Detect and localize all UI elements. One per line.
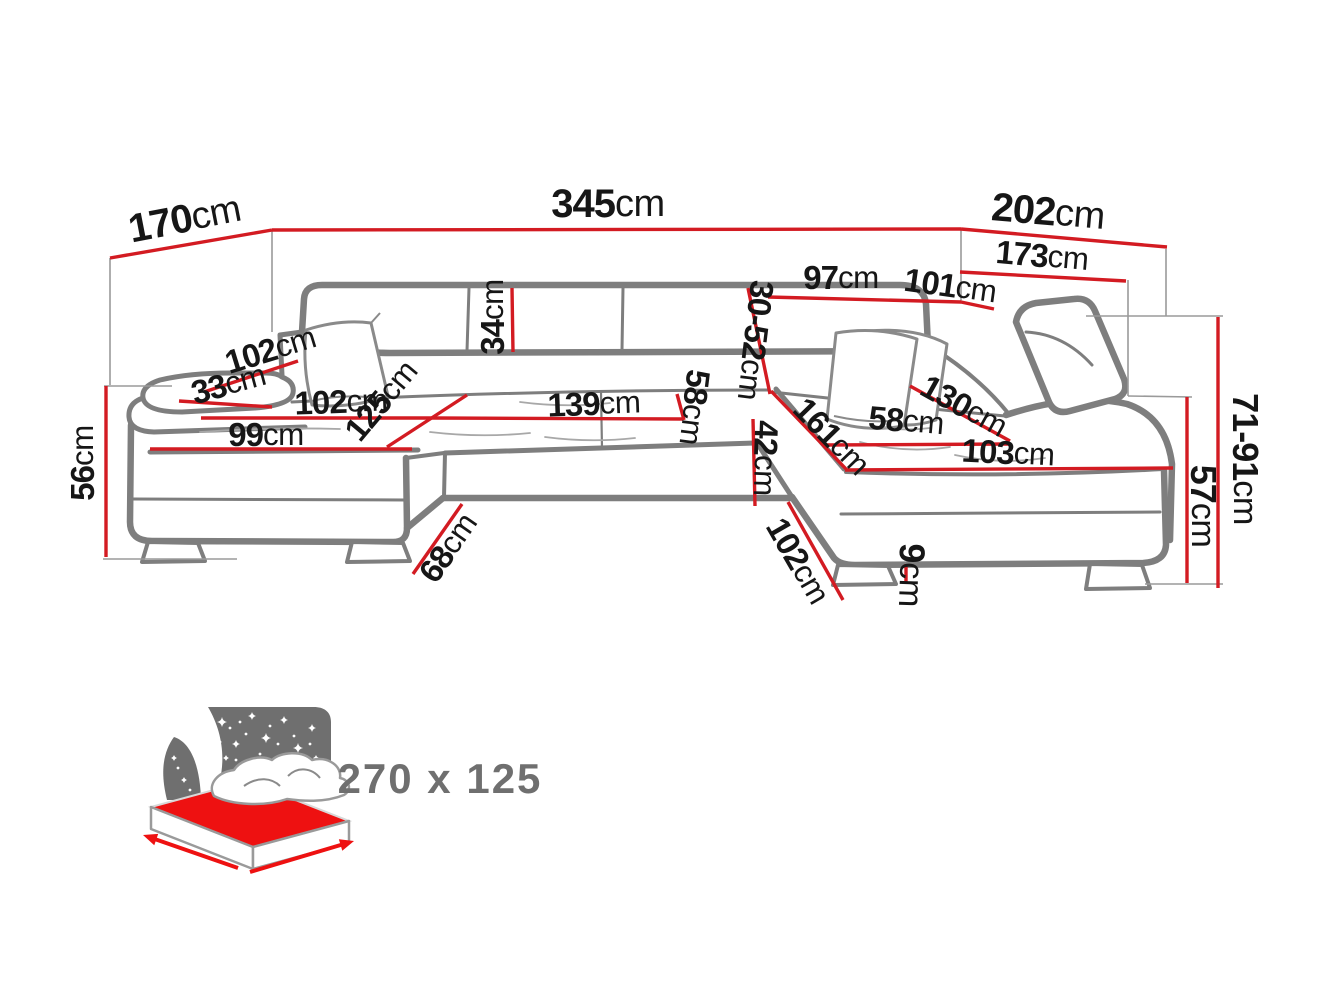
dim-label-overall-depth-left: 170cm — [125, 186, 245, 251]
size-arrow-head — [339, 839, 354, 851]
dim-label-foot-height: 9cm — [890, 543, 933, 608]
dim-label-chaise-front-right: 103cm — [961, 431, 1056, 473]
size-arrow-head — [143, 834, 158, 845]
star-dot-icon — [245, 733, 248, 736]
dim-label-overall-depth-right: 202cm — [990, 185, 1107, 239]
star-icon — [203, 745, 209, 751]
chaise-left-inner-corner — [407, 498, 443, 528]
sleeping-function-icon: 270 x 125 — [143, 707, 542, 872]
base-seam-right — [841, 512, 1160, 514]
dim-label-chaise-side-right: 102cm — [759, 511, 837, 610]
foot-right-1 — [833, 565, 896, 585]
star-dot-icon — [217, 769, 220, 772]
construction-line-8 — [1128, 396, 1192, 397]
sleeping-size-label: 270 x 125 — [338, 755, 543, 802]
wrinkle — [430, 432, 530, 435]
star-dot-icon — [219, 741, 222, 744]
backrest-seam-left — [467, 288, 469, 351]
dim-label-backrest-top-width: 97cm — [803, 259, 879, 296]
diagram-canvas: 170cm345cm202cm173cm97cm101cm34cm30-52cm… — [0, 0, 1320, 990]
chaise-right-outline — [792, 470, 1166, 565]
dim-line-backrest-height — [512, 288, 513, 352]
star-dot-icon — [229, 727, 232, 730]
wrinkle — [545, 437, 635, 440]
dim-label-backrest-height: 34cm — [474, 279, 511, 355]
star-dot-icon — [239, 721, 242, 724]
middle-face-left-edge — [444, 453, 445, 497]
dim-label-chaise-front-left: 99cm — [228, 416, 304, 453]
star-dot-icon — [269, 725, 272, 728]
dim-label-seat-height-left: 56cm — [64, 425, 101, 501]
dim-label-front-height-middle: 42cm — [746, 420, 786, 497]
sofa-dimension-diagram: 170cm345cm202cm173cm97cm101cm34cm30-52cm… — [0, 0, 1320, 990]
foot-right-2 — [1086, 564, 1150, 589]
dim-label-seat-height-right: 57cm — [1183, 465, 1224, 548]
foot-left-2 — [347, 542, 410, 562]
star-dot-icon — [235, 759, 238, 762]
star-dot-icon — [259, 753, 262, 756]
backrest-seam-right — [622, 288, 623, 350]
base-seam-left — [133, 499, 406, 500]
dim-label-seat-width-middle: 139cm — [547, 383, 641, 423]
chaise-left-inner-top — [406, 453, 444, 458]
star-dot-icon — [309, 743, 312, 746]
star-dot-icon — [293, 735, 296, 738]
dim-line-overall-width — [272, 229, 961, 230]
dim-label-height-range: 71-91cm — [1225, 393, 1266, 525]
star-dot-icon — [277, 743, 280, 746]
dim-label-seat-depth-middle: 58cm — [672, 368, 718, 447]
star-dot-icon — [189, 789, 192, 792]
star-dot-icon — [177, 767, 180, 770]
middle-front-top — [445, 443, 755, 453]
starry-band — [163, 737, 201, 800]
dim-label-overall-width: 345cm — [551, 182, 664, 226]
